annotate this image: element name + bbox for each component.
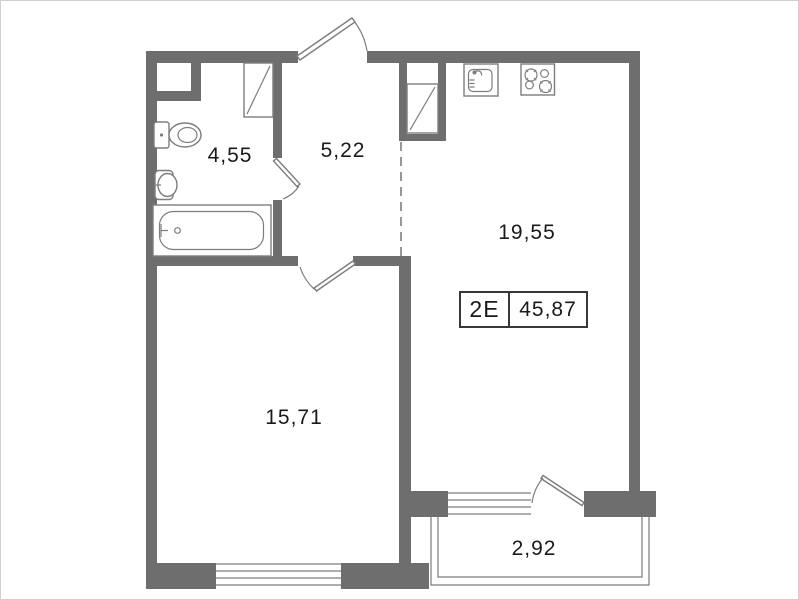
wall-balcony-window-left xyxy=(411,491,448,517)
wall-right xyxy=(629,51,640,491)
ventilation-shaft-icon xyxy=(407,84,438,133)
ventilation-shaft-icon xyxy=(244,63,273,117)
wall-corner-shaft-v xyxy=(191,63,201,101)
window-icon xyxy=(448,493,531,514)
apartment-total-area-label: 45,87 xyxy=(510,293,586,326)
room-area-label-hallway: 5,22 xyxy=(321,139,366,163)
wall-top-right xyxy=(367,51,640,63)
bathtub-icon xyxy=(153,205,271,256)
apartment-label-box: 2Е 45,87 xyxy=(459,291,588,328)
floor-plan-drawing xyxy=(1,1,799,600)
toilet-icon xyxy=(154,122,201,148)
window-icon xyxy=(216,564,341,585)
bedroom-door-icon xyxy=(300,261,356,291)
room-area-label-balcony: 2,92 xyxy=(512,537,557,561)
wall-bathroom-bottom xyxy=(157,256,298,266)
wall-bedroom-bottom-left xyxy=(146,563,216,589)
wall-hall-shaft-left xyxy=(399,63,407,141)
room-area-label-bedroom: 15,71 xyxy=(265,406,323,430)
wall-balcony-window-right xyxy=(584,491,656,517)
floor-plan: 4,55 5,22 19,55 15,71 2,92 2Е 45,87 xyxy=(0,0,799,600)
stove-icon xyxy=(521,64,555,95)
wall-bathroom-hall-upper xyxy=(273,63,282,158)
wall-hall-shaft-bottom xyxy=(399,134,446,141)
wall-top-left xyxy=(146,51,298,63)
room-area-label-kitchen-living: 19,55 xyxy=(498,221,556,245)
washbasin-icon xyxy=(154,171,177,200)
wall-bedroom-living xyxy=(399,256,411,563)
balcony-door-icon xyxy=(532,476,584,506)
bathroom-door-icon xyxy=(274,159,301,200)
entrance-door-icon xyxy=(297,18,367,60)
wall-bedroom-bottom-right xyxy=(341,563,429,589)
wall-bathroom-hall-lower xyxy=(273,200,282,260)
apartment-type-label: 2Е xyxy=(461,293,510,326)
kitchen-sink-icon xyxy=(464,64,498,96)
wall-hall-shaft-right xyxy=(438,63,446,141)
room-area-label-bathroom: 4,55 xyxy=(208,144,253,168)
